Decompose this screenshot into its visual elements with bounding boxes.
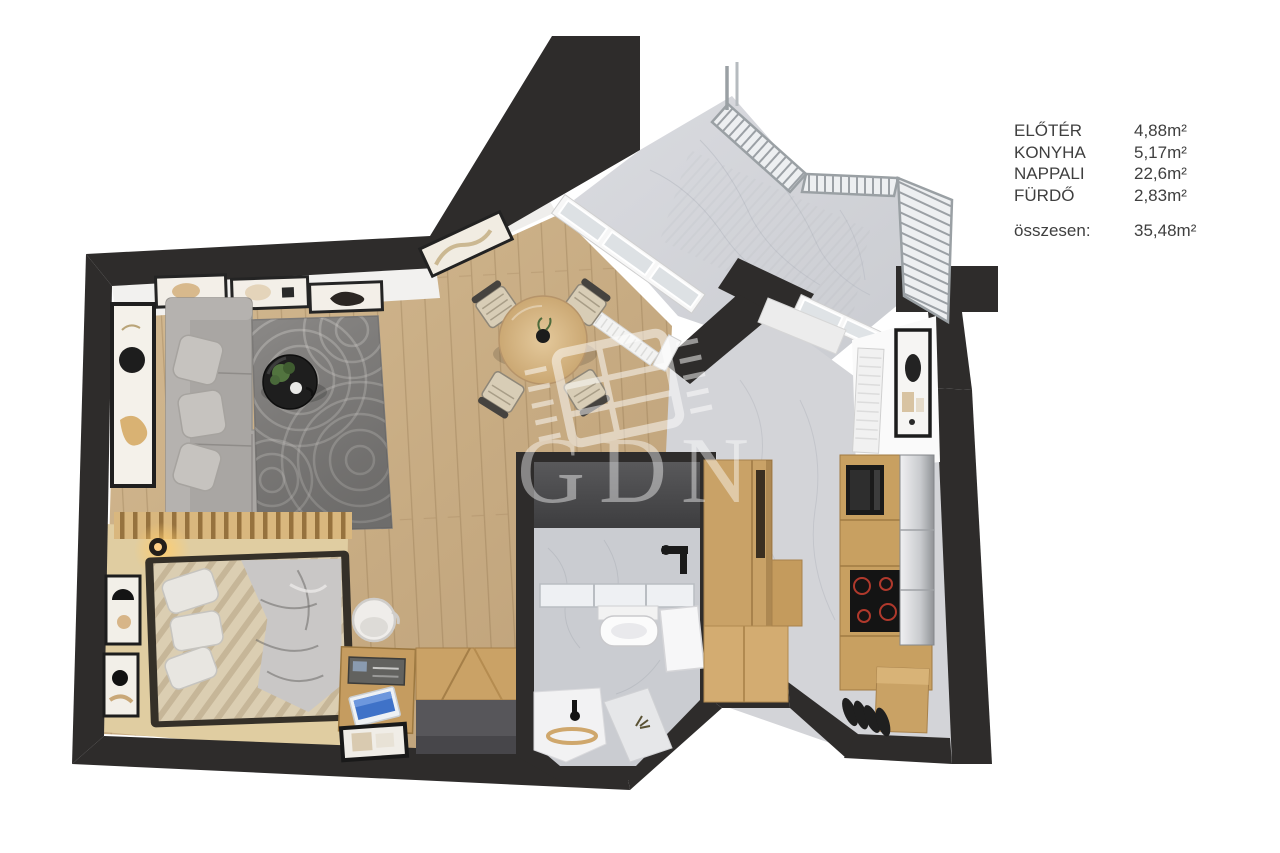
- room-area: 22,6m²: [1134, 164, 1187, 183]
- legend-row: KONYHA5,17m²: [1014, 142, 1196, 164]
- legend-total-row: összesen:35,48m²: [1014, 220, 1196, 242]
- room-label: FÜRDŐ: [1014, 185, 1134, 207]
- room-area: 5,17m²: [1134, 143, 1187, 162]
- bed: [145, 550, 355, 727]
- floorplan-screenshot: GDN ELŐTÉR4,88m² KONYHA5,17m² NAPPALI22,…: [0, 0, 1280, 853]
- legend-row: FÜRDŐ2,83m²: [1014, 185, 1196, 207]
- area-legend: ELŐTÉR4,88m² KONYHA5,17m² NAPPALI22,6m² …: [1014, 120, 1196, 242]
- cooktop: [850, 570, 900, 632]
- desk: [339, 647, 416, 734]
- room-label: KONYHA: [1014, 142, 1134, 164]
- shower-glass: [540, 584, 694, 607]
- kitchen-wall-face: [852, 316, 940, 470]
- room-label: NAPPALI: [1014, 163, 1134, 185]
- toilet: [598, 606, 658, 646]
- kitchen-radiator: [853, 348, 884, 453]
- kitchen-art-frame: [896, 330, 930, 436]
- legend-row: NAPPALI22,6m²: [1014, 163, 1196, 185]
- room-area: 2,83m²: [1134, 186, 1187, 205]
- total-label: összesen:: [1014, 220, 1134, 242]
- tall-cabinet: [900, 455, 934, 645]
- room-label: ELŐTÉR: [1014, 120, 1134, 142]
- wardrobe-low: [416, 648, 530, 754]
- leaning-art-frame: [341, 724, 407, 760]
- room-area: 4,88m²: [1134, 121, 1187, 140]
- total-area: 35,48m²: [1134, 221, 1196, 240]
- sofa-pillows: [171, 333, 227, 493]
- watermark-text: GDN: [517, 419, 763, 523]
- bathroom-cabinet: [660, 606, 704, 672]
- kitchen-cabinets: [840, 455, 934, 690]
- legend-row: ELŐTÉR4,88m²: [1014, 120, 1196, 142]
